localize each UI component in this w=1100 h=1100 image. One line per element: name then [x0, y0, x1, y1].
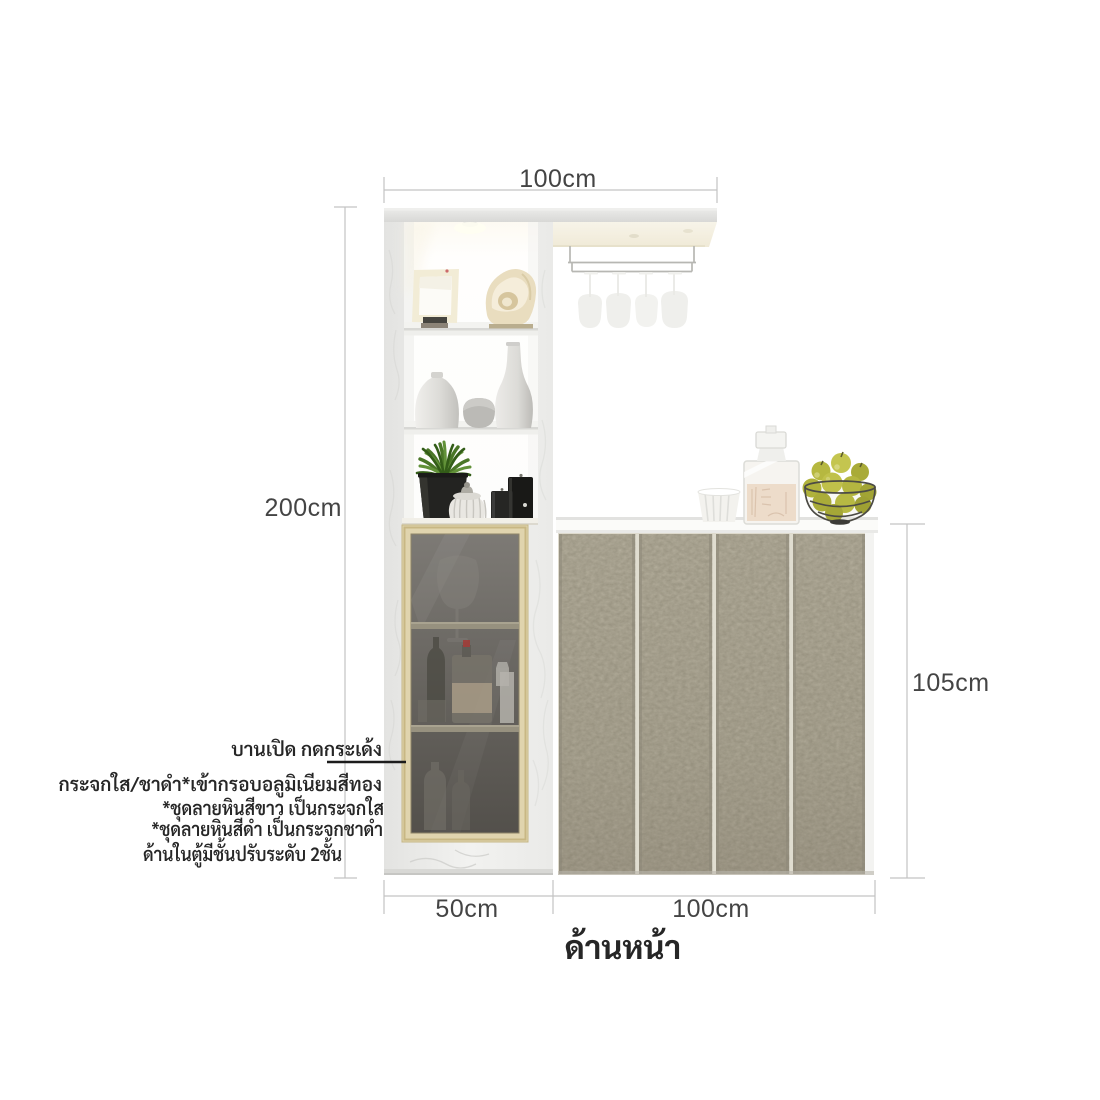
svg-text:50cm: 50cm [435, 895, 498, 923]
svg-text:100cm: 100cm [672, 895, 750, 923]
svg-text:105cm: 105cm [912, 669, 990, 697]
svg-text:100cm: 100cm [519, 165, 597, 193]
svg-text:200cm: 200cm [264, 494, 342, 522]
